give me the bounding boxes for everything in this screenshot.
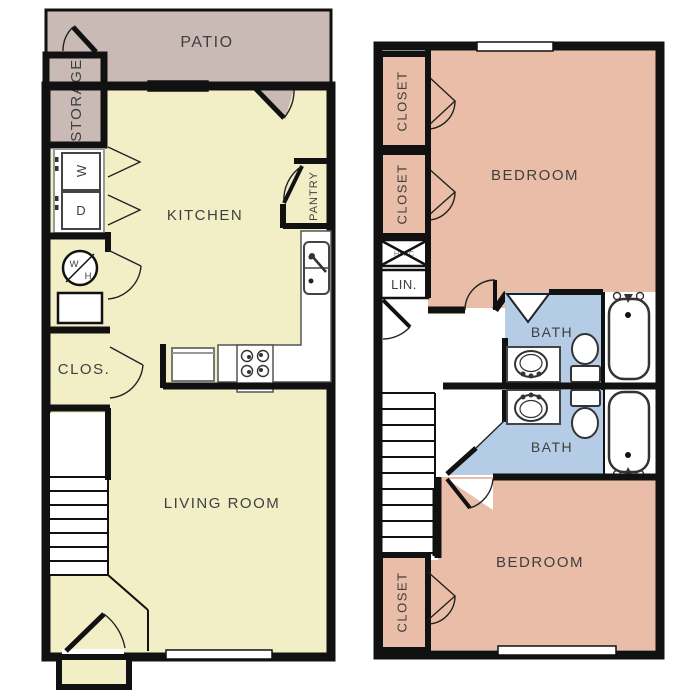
- floorplan-canvas: STORAGE W D W H: [0, 0, 700, 700]
- dryer-knob: [55, 205, 59, 210]
- bathtub1-icon: [609, 299, 649, 379]
- stove-burner-dot: [259, 353, 263, 357]
- floor1-plan: STORAGE W D W H: [46, 10, 331, 687]
- storage-label: STORAGE: [68, 58, 85, 142]
- utility-box: [58, 293, 102, 323]
- closet-bottom-label: CLOSET: [394, 571, 409, 632]
- stove-burner-dot: [259, 368, 263, 372]
- bath1-faucet-dot: [521, 372, 526, 377]
- washer-label: W: [74, 164, 89, 177]
- bath2-faucet-dot: [537, 395, 542, 400]
- water-heater-h-label: H: [85, 271, 92, 282]
- bath1-faucet-dot: [537, 372, 542, 377]
- kitchen-label: KITCHEN: [167, 207, 243, 224]
- dryer-knob: [55, 196, 59, 201]
- bathtub2-icon: [609, 392, 649, 472]
- bath2-faucet-dot: [521, 395, 526, 400]
- bath1-faucet-dot: [529, 374, 534, 379]
- pantry-label: PANTRY: [308, 171, 320, 221]
- bedroom2-window: [498, 646, 616, 655]
- bedroom1-window: [477, 42, 553, 51]
- dryer-label: D: [76, 203, 85, 218]
- floorplan-svg: STORAGE W D W H: [0, 0, 700, 700]
- closet-top-label: CLOSET: [394, 70, 409, 131]
- bath2-faucet-dot: [529, 393, 534, 398]
- bedroom2-label: BEDROOM: [496, 554, 584, 571]
- patio-label: PATIO: [180, 34, 233, 51]
- bath1-toilet-bowl-icon: [572, 334, 598, 364]
- bath2-toilet-tank: [571, 390, 600, 406]
- sink-faucet-base: [309, 253, 315, 259]
- stairwell: [50, 413, 108, 575]
- bath2-toilet-bowl-icon: [572, 408, 598, 438]
- sink-drain: [309, 279, 314, 284]
- stove-burner-dot: [247, 355, 251, 359]
- washer-knob: [55, 166, 59, 171]
- tub1-drain: [625, 312, 631, 318]
- tub2-drain: [625, 452, 631, 458]
- washer-knob: [55, 157, 59, 162]
- bath1-toilet-tank: [571, 366, 600, 382]
- floor2-plan: CLOSET CLOSET HVAC LIN.: [378, 42, 660, 655]
- bedroom1-label: BEDROOM: [491, 167, 579, 184]
- living-room-label: LIVING ROOM: [164, 495, 281, 512]
- stove-burner-dot: [247, 370, 251, 374]
- entry-stoop: [59, 657, 129, 687]
- water-heater-w-label: W: [70, 259, 79, 270]
- closet-mid-label: CLOSET: [394, 163, 409, 224]
- bath1-label: BATH: [531, 324, 573, 340]
- linen-label: LIN.: [391, 277, 417, 292]
- closet1-label: CLOS.: [58, 361, 111, 378]
- living-room-window: [166, 650, 272, 659]
- bath2-label: BATH: [531, 439, 573, 455]
